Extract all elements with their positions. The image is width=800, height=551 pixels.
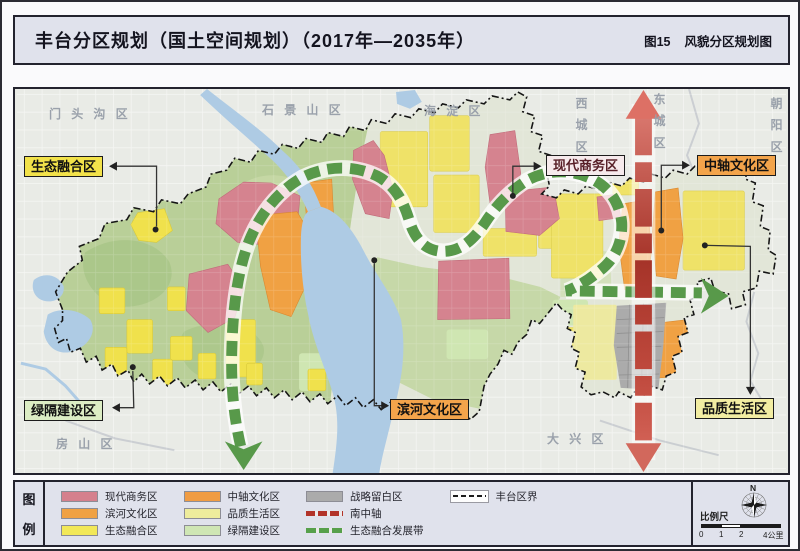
swatch-modern-business (61, 491, 98, 502)
legend-item: 丰台区界 (450, 490, 538, 503)
legend-item: 现代商务区 (61, 490, 158, 503)
legend-item: 生态融合发展带 (306, 524, 424, 537)
swatch-quality-life (184, 508, 221, 519)
callout-eco-fusion: 生态融合区 (24, 156, 103, 177)
figure-name: 风貌分区规划图 (684, 35, 772, 49)
title-bar: 丰台分区规划（国土空间规划）（2017年—2035年） 图15风貌分区规划图 (13, 15, 790, 65)
legend-header: 图 例 (15, 482, 45, 545)
district-label-mentougou: 门头沟区 (49, 105, 138, 122)
swatch-axis-culture (184, 491, 221, 502)
figure-number: 图15 (644, 35, 670, 49)
scale-compass-box: N 比例尺 0 (691, 482, 788, 545)
district-label-haidian: 海淀区 (424, 102, 491, 119)
callout-quality-life: 品质生活区 (695, 398, 774, 419)
district-label-xicheng: 西城区 (573, 97, 590, 162)
callout-greenbelt: 绿隔建设区 (24, 400, 103, 421)
district-label-daxing: 大兴区 (547, 430, 614, 447)
district-label-fangshan: 房山区 (56, 435, 123, 452)
swatch-greenbelt (184, 525, 221, 536)
legend-item: 中轴文化区 (184, 490, 281, 503)
district-label-shijingshan: 石景山区 (262, 101, 351, 118)
legend-item: 绿隔建设区 (184, 524, 281, 537)
page-title: 丰台分区规划（国土空间规划）（2017年—2035年） (15, 27, 475, 53)
figure-caption: 图15风貌分区规划图 (644, 31, 788, 50)
compass-rose-icon (739, 490, 769, 520)
callout-riverside: 滨河文化区 (390, 399, 469, 420)
callout-modern-business: 现代商务区 (546, 155, 625, 176)
callout-axis-culture: 中轴文化区 (697, 155, 776, 176)
legend-item: 滨河文化区 (61, 507, 158, 520)
planning-document-page: 丰台分区规划（国土空间规划）（2017年—2035年） 图15风貌分区规划图 (0, 0, 800, 551)
swatch-south-axis (306, 511, 343, 516)
map-canvas: 门头沟区 石景山区 海淀区 西城区 东城区 朝阳区 房山区 大兴区 生态融合区 … (13, 87, 790, 475)
legend-header-char-1: 图 (22, 489, 35, 508)
legend-bar: 图 例 现代商务区 滨河文化区 生态融合区 中轴文化区 品质生活区 绿隔建设区 … (13, 480, 790, 547)
legend-header-char-2: 例 (22, 519, 35, 538)
scale-ticks: 0 1 2 4公里 (701, 530, 785, 540)
legend-items: 现代商务区 滨河文化区 生态融合区 中轴文化区 品质生活区 绿隔建设区 战略留白… (45, 482, 691, 545)
scale-bar (701, 524, 781, 528)
legend-item: 战略留白区 (306, 490, 424, 503)
scale-label: 比例尺 (700, 509, 729, 523)
district-label-dongcheng: 东城区 (651, 93, 668, 158)
legend-item: 南中轴 (306, 507, 424, 520)
swatch-eco-fusion (61, 525, 98, 536)
swatch-strategic-reserve (306, 491, 343, 502)
swatch-eco-belt (306, 528, 343, 533)
legend-item: 生态融合区 (61, 524, 158, 537)
legend-item: 品质生活区 (184, 507, 281, 520)
swatch-riverside (61, 508, 98, 519)
district-label-chaoyang: 朝阳区 (768, 97, 785, 162)
swatch-district-boundary (450, 490, 489, 503)
